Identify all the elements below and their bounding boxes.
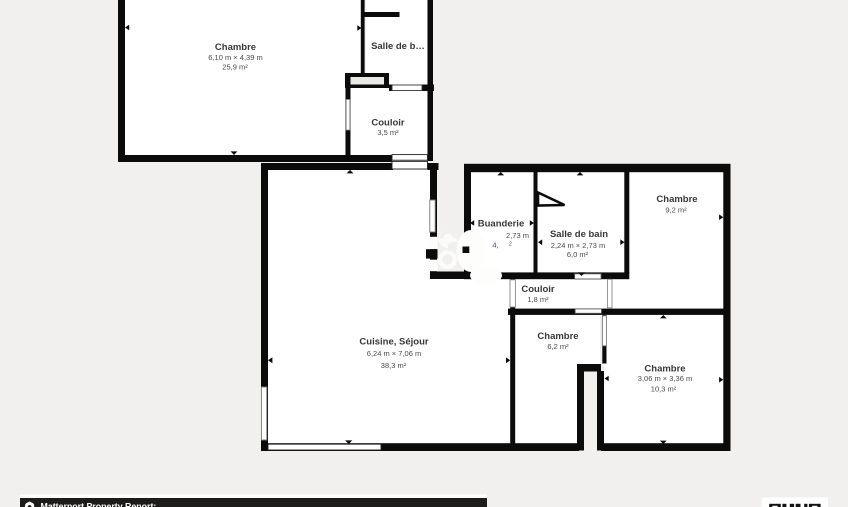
svg-text:6,2 m²: 6,2 m²: [547, 342, 569, 351]
svg-text:6,10 m × 4,39 m: 6,10 m × 4,39 m: [208, 53, 262, 62]
svg-text:38,3 m²: 38,3 m²: [381, 361, 407, 370]
svg-text:2,73 m: 2,73 m: [506, 231, 529, 240]
svg-text:Cuisine, Séjour: Cuisine, Séjour: [359, 336, 428, 347]
svg-text:3,06 m × 3,36 m: 3,06 m × 3,36 m: [638, 374, 692, 383]
svg-text:Couloir: Couloir: [371, 117, 405, 128]
svg-text:Chambre: Chambre: [644, 363, 685, 374]
svg-text:Matterport Property Report:: Matterport Property Report:: [41, 501, 157, 507]
svg-text:9,2 m²: 9,2 m²: [665, 206, 687, 215]
svg-text:Buanderie: Buanderie: [478, 218, 524, 229]
svg-text:3,5 m²: 3,5 m²: [377, 128, 399, 137]
svg-text:25,9 m²: 25,9 m²: [222, 63, 248, 72]
svg-text:Chambre: Chambre: [537, 331, 578, 342]
svg-text:2,24 m × 2,73 m: 2,24 m × 2,73 m: [551, 241, 605, 250]
svg-text:Salle de b…: Salle de b…: [371, 41, 425, 52]
svg-text:10,3 m²: 10,3 m²: [651, 385, 677, 394]
svg-text:1,8 m²: 1,8 m²: [527, 295, 549, 304]
svg-text:Chambre: Chambre: [656, 194, 697, 205]
svg-text:Chambre: Chambre: [215, 42, 256, 53]
svg-text:6,24 m × 7,06 m: 6,24 m × 7,06 m: [367, 349, 421, 358]
svg-text:4,: 4,: [492, 241, 498, 250]
svg-text:6,0 m²: 6,0 m²: [567, 250, 589, 259]
svg-text:2: 2: [509, 242, 512, 248]
svg-text:Salle de bain: Salle de bain: [550, 229, 608, 240]
svg-text:Couloir: Couloir: [521, 284, 555, 295]
